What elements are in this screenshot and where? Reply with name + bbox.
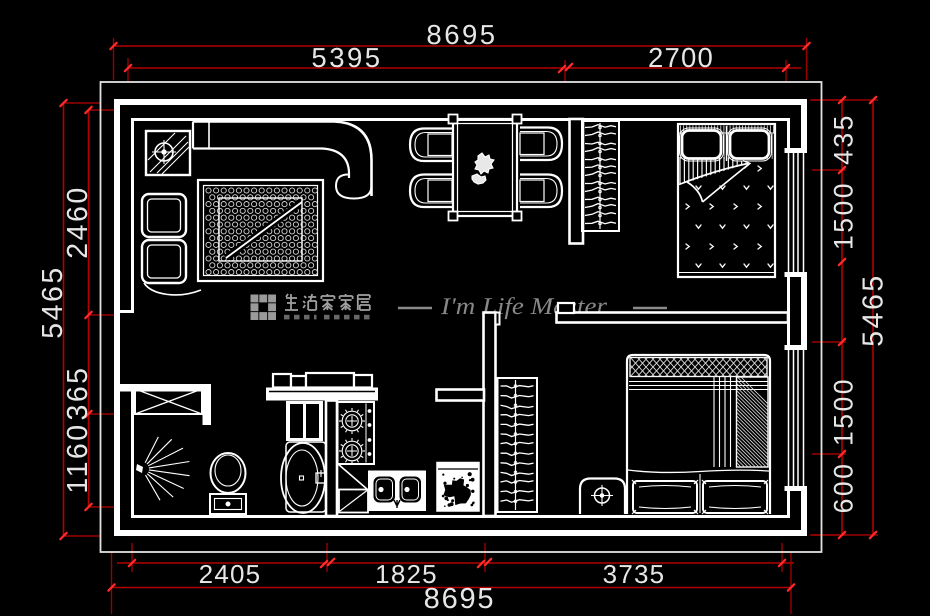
svg-text:1160: 1160 <box>62 422 94 493</box>
svg-text:8695: 8695 <box>426 19 497 50</box>
svg-text:365: 365 <box>62 365 94 420</box>
svg-text:435: 435 <box>829 113 859 165</box>
svg-text:5465: 5465 <box>858 273 890 346</box>
svg-text:600: 600 <box>829 462 859 514</box>
svg-text:2460: 2460 <box>62 185 94 258</box>
svg-text:5395: 5395 <box>311 42 382 73</box>
svg-text:8695: 8695 <box>424 583 496 615</box>
svg-text:3735: 3735 <box>603 559 666 589</box>
svg-text:5465: 5465 <box>37 265 69 338</box>
svg-text:2405: 2405 <box>199 559 262 589</box>
svg-text:1500: 1500 <box>829 181 859 250</box>
svg-text:2700: 2700 <box>648 42 714 73</box>
svg-text:1500: 1500 <box>829 377 859 446</box>
